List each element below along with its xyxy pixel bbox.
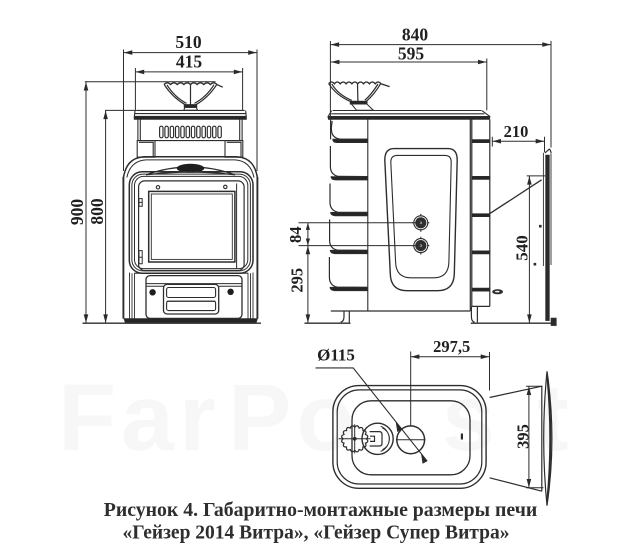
svg-text:595: 595 (398, 44, 425, 64)
svg-text:900: 900 (67, 199, 87, 226)
svg-text:Far: Far (58, 365, 221, 471)
svg-text:800: 800 (87, 198, 107, 225)
svg-text:«Гейзер 2014 Витра», «Гейзер С: «Гейзер 2014 Витра», «Гейзер Супер Витра… (123, 523, 510, 544)
svg-text:Рисунок 4. Габаритно-монтажные: Рисунок 4. Габаритно-монтажные размеры п… (104, 499, 538, 521)
svg-text:510: 510 (175, 32, 202, 52)
svg-text:s: s (442, 365, 495, 471)
svg-text:840: 840 (402, 25, 429, 45)
svg-text:297,5: 297,5 (433, 337, 470, 356)
svg-text:Ø115: Ø115 (317, 346, 355, 365)
svg-text:415: 415 (176, 51, 203, 71)
svg-text:295: 295 (288, 268, 307, 293)
svg-text:Po: Po (228, 365, 359, 471)
svg-text:210: 210 (504, 122, 529, 141)
svg-text:395: 395 (514, 424, 533, 449)
svg-text:540: 540 (513, 235, 532, 261)
svg-text:84: 84 (286, 227, 305, 244)
